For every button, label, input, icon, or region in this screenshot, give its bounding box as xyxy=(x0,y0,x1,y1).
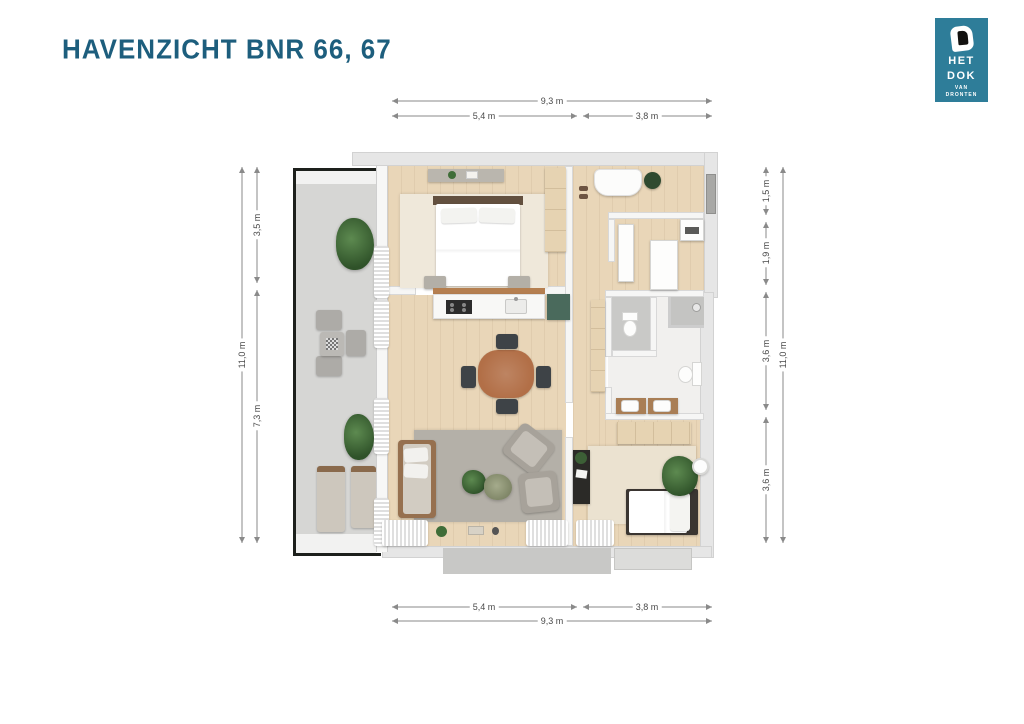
bistro-table-top xyxy=(326,338,338,350)
kitchen-sink-icon xyxy=(505,299,527,314)
entrance-stoop xyxy=(443,548,611,574)
pillow xyxy=(441,207,478,223)
sofa-pillow xyxy=(404,463,429,478)
entry-door xyxy=(706,174,716,214)
sink-icon xyxy=(653,400,671,412)
storage-shelf xyxy=(680,219,704,241)
dining-chair xyxy=(536,366,551,388)
armchair-cushion xyxy=(525,477,554,508)
curtain xyxy=(576,520,614,546)
balcony-railing-bottom xyxy=(293,553,381,556)
pillow xyxy=(670,493,690,531)
windowsill-books xyxy=(468,526,484,535)
wall-clock-icon xyxy=(692,458,709,475)
bistro-table xyxy=(320,332,344,356)
bathroom-wall-left-a xyxy=(605,297,612,357)
burner xyxy=(462,308,466,312)
pillow xyxy=(479,207,516,223)
dining-table xyxy=(478,350,534,398)
kitchen-green-cabinet xyxy=(547,294,570,320)
curtain xyxy=(374,300,389,348)
storage-shelf-slot xyxy=(685,227,699,234)
floor-plan xyxy=(0,0,1024,724)
dining-chair xyxy=(461,366,476,388)
coffee-table-plant-icon xyxy=(484,474,512,500)
curtain xyxy=(374,246,389,298)
desk-plant-icon xyxy=(575,452,587,464)
balcony-plant-icon xyxy=(344,414,374,460)
bathroom-wall-bottom xyxy=(605,413,704,420)
armchair-cushion xyxy=(509,430,549,469)
toilet-room-wall-bottom xyxy=(612,350,657,357)
armchair xyxy=(518,470,560,514)
faucet-icon xyxy=(514,297,518,301)
burner xyxy=(462,303,466,307)
bathroom-wall-top xyxy=(605,290,704,297)
coffee-table-plant-icon xyxy=(462,470,486,494)
storage-wall-left xyxy=(608,219,615,262)
shoes xyxy=(579,194,588,199)
floorplan-page: HAVENZICHT BNR 66, 67 HET DOK VAN DRONTE… xyxy=(0,0,1024,724)
burner xyxy=(450,303,454,307)
shower-head-icon xyxy=(692,303,701,312)
lounge-chair xyxy=(351,466,376,528)
bistro-chair xyxy=(346,330,366,356)
storage-cabinet xyxy=(650,240,678,290)
toilet-room-wall-right xyxy=(650,297,657,357)
balcony-plant-icon xyxy=(336,218,374,270)
burner xyxy=(450,308,454,312)
storage-cabinet xyxy=(618,224,634,282)
curtain xyxy=(526,520,568,546)
toilet-icon xyxy=(623,320,637,337)
desk xyxy=(573,450,590,504)
toilet-icon xyxy=(678,366,693,383)
curtain xyxy=(374,398,389,454)
wall-top xyxy=(352,152,718,166)
sink-icon xyxy=(621,400,639,412)
sideboard-books xyxy=(466,171,478,179)
wall-right-lower xyxy=(700,292,714,558)
corridor-cabinet xyxy=(591,300,605,392)
wardrobe-bedroom1 xyxy=(545,168,566,252)
bistro-chair xyxy=(316,356,342,376)
dining-chair xyxy=(496,399,518,414)
shower-glass xyxy=(668,297,671,327)
shoes xyxy=(579,186,588,191)
storage-wall-top xyxy=(608,212,704,219)
window-band-left xyxy=(376,166,388,552)
hall-plant-icon xyxy=(644,172,661,189)
entrance-stoop xyxy=(614,548,692,570)
toilet-tank xyxy=(692,362,702,386)
shower-glass xyxy=(668,325,704,328)
balcony-railing-left xyxy=(293,168,296,556)
sofa xyxy=(398,440,436,518)
lounge-chair xyxy=(317,466,345,532)
wall-vertical-upper xyxy=(565,166,573,403)
sideboard-plant-icon xyxy=(448,171,456,179)
windowsill-vase xyxy=(492,527,499,535)
windowsill-plant-icon xyxy=(436,526,447,537)
dining-chair xyxy=(496,334,518,349)
curtain xyxy=(382,520,428,546)
cooktop-icon xyxy=(446,300,472,314)
balcony-railing-top xyxy=(293,168,381,171)
bistro-chair xyxy=(316,310,342,330)
wardrobe-bedroom2 xyxy=(617,422,691,444)
sofa-pillow xyxy=(404,447,429,463)
hall-cabinet xyxy=(594,169,642,196)
desk-papers xyxy=(575,469,587,478)
